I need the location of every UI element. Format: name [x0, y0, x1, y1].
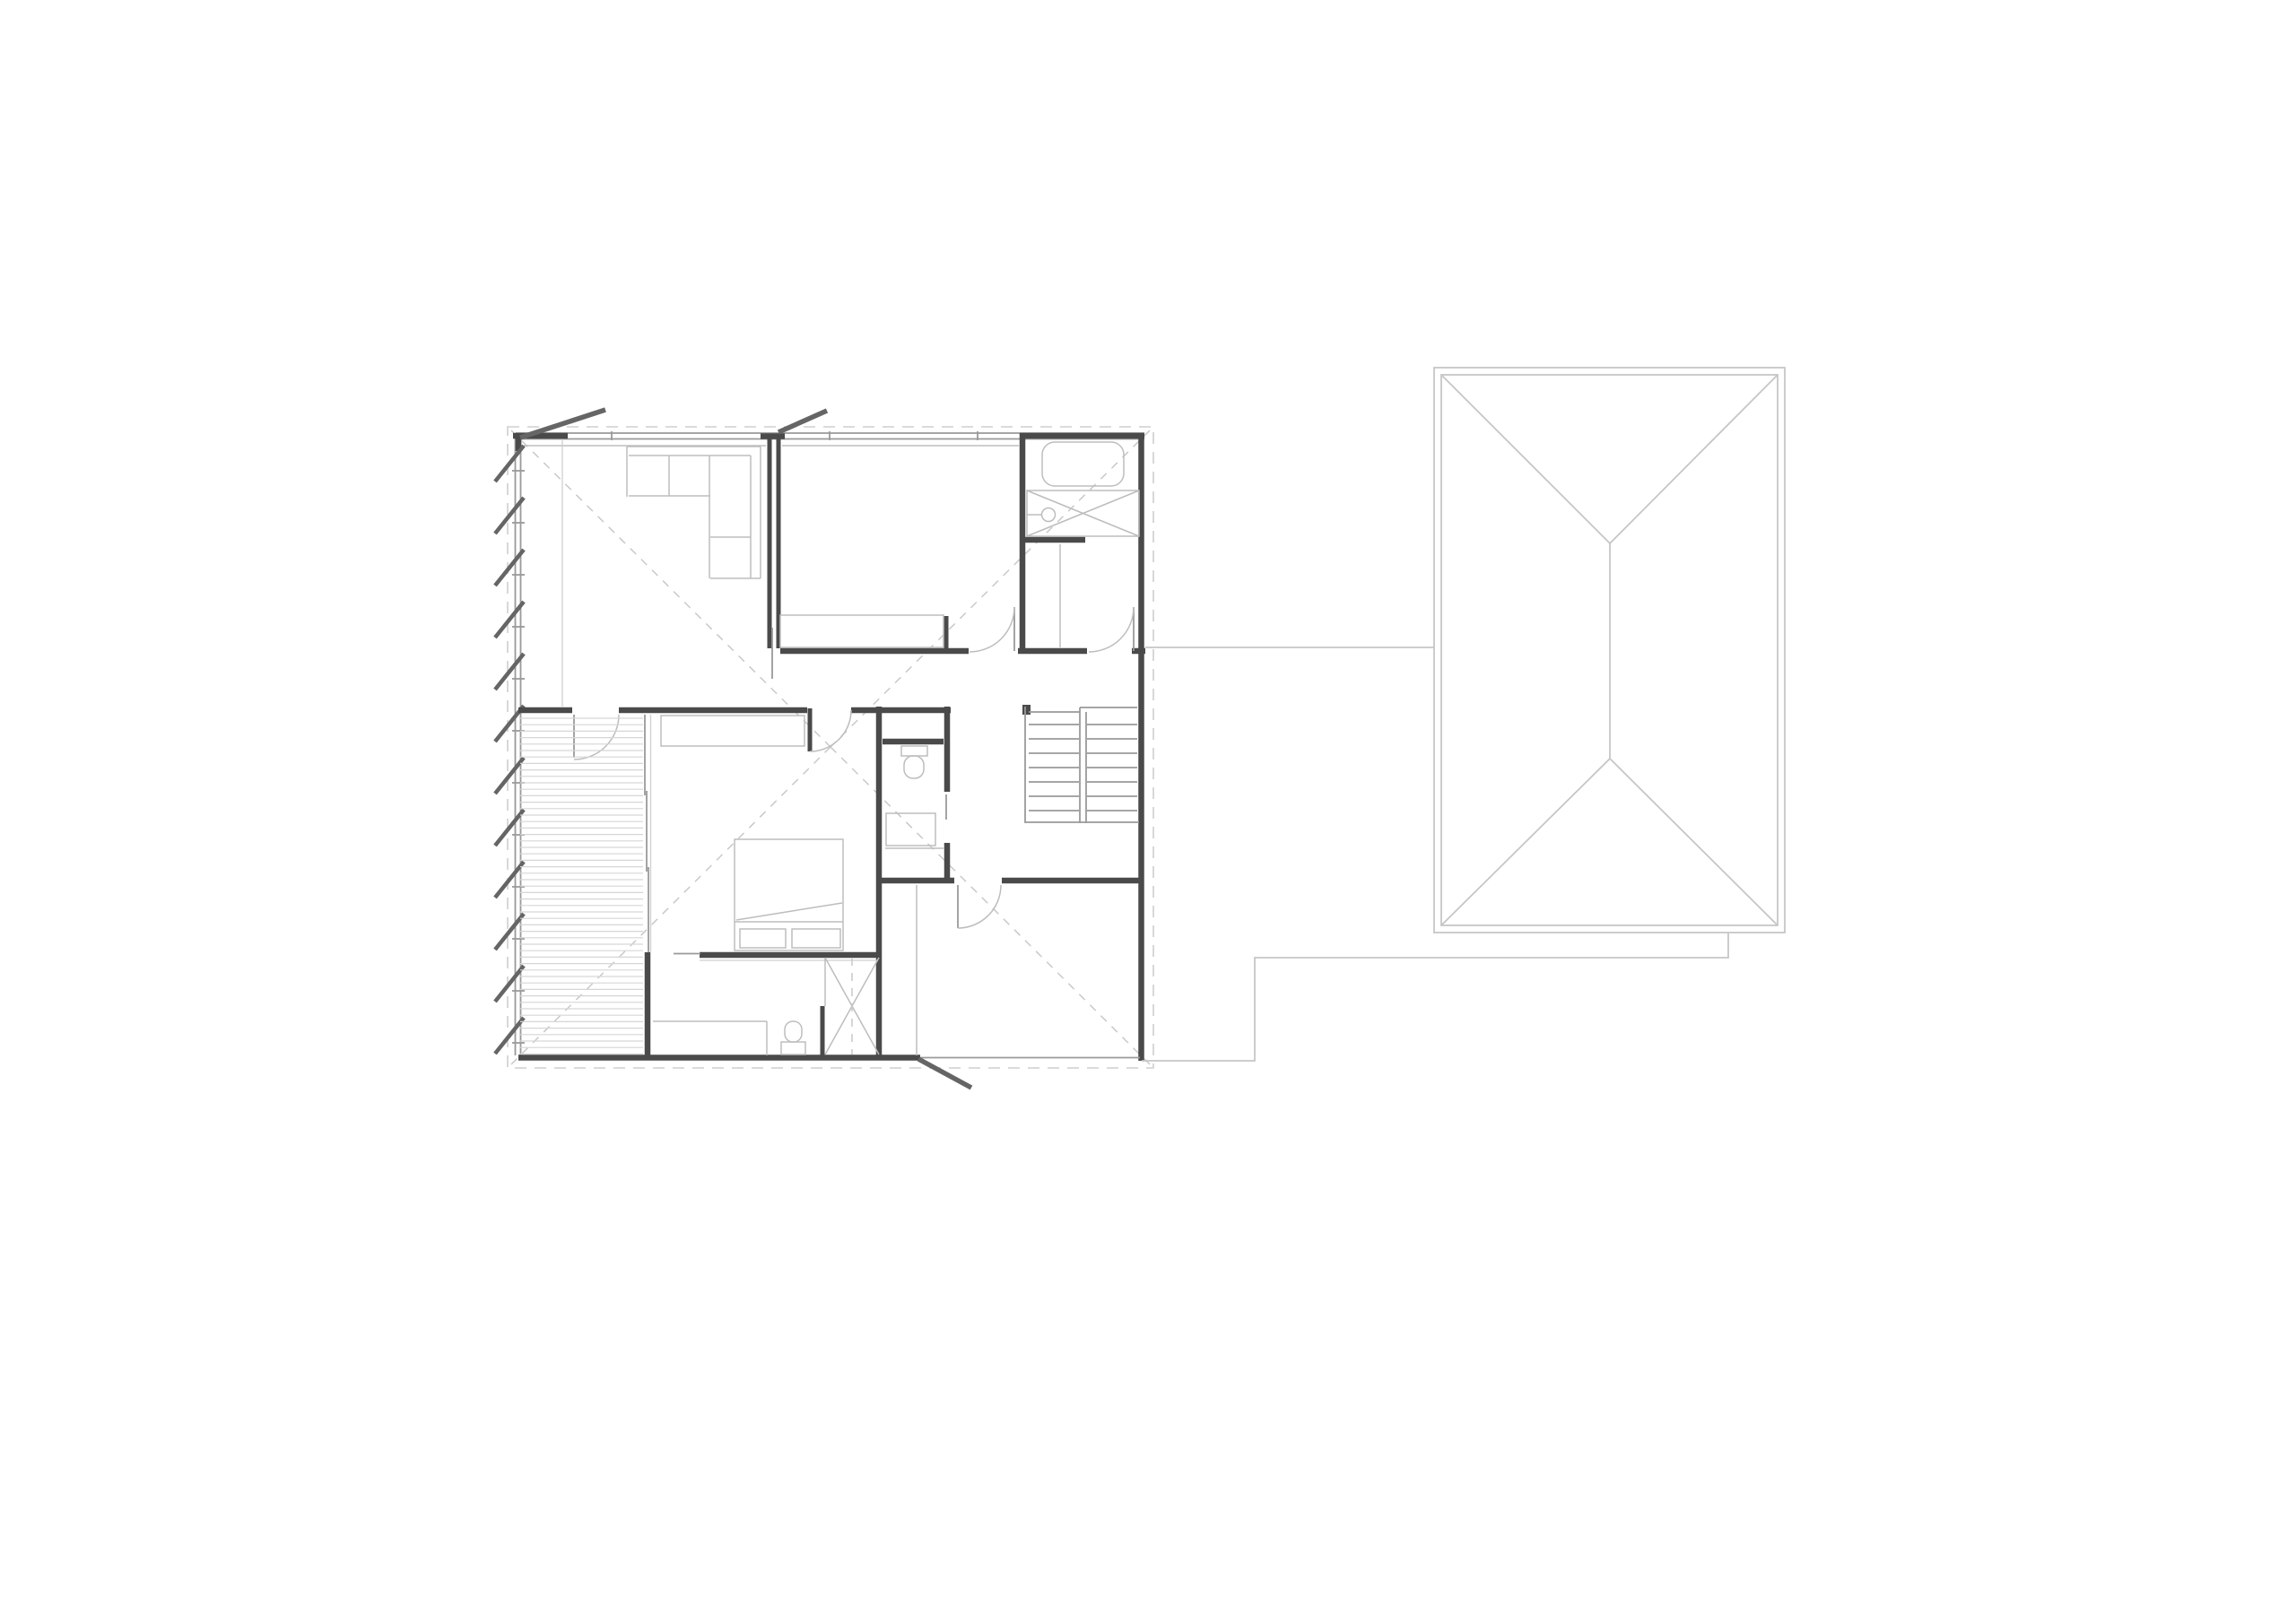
- bathroom-fixtures: [1027, 442, 1139, 647]
- screen-wall-hatch-ticks: [495, 446, 524, 1054]
- setout-connector-lines: [1142, 647, 1728, 1061]
- bedroom2-joinery: [780, 615, 944, 647]
- wc-laundry-fixtures: [885, 746, 944, 848]
- garage-roof-plan: [1434, 368, 1785, 933]
- floor-plan-drawing: [0, 0, 2296, 1623]
- living-room-sofa: [562, 440, 761, 707]
- break-marks: [520, 410, 971, 1088]
- ensuite-fixtures: [653, 958, 879, 1055]
- stairs: [1025, 707, 1139, 823]
- deck-boards: [520, 718, 643, 1054]
- floor-plan-page: [0, 0, 2296, 1623]
